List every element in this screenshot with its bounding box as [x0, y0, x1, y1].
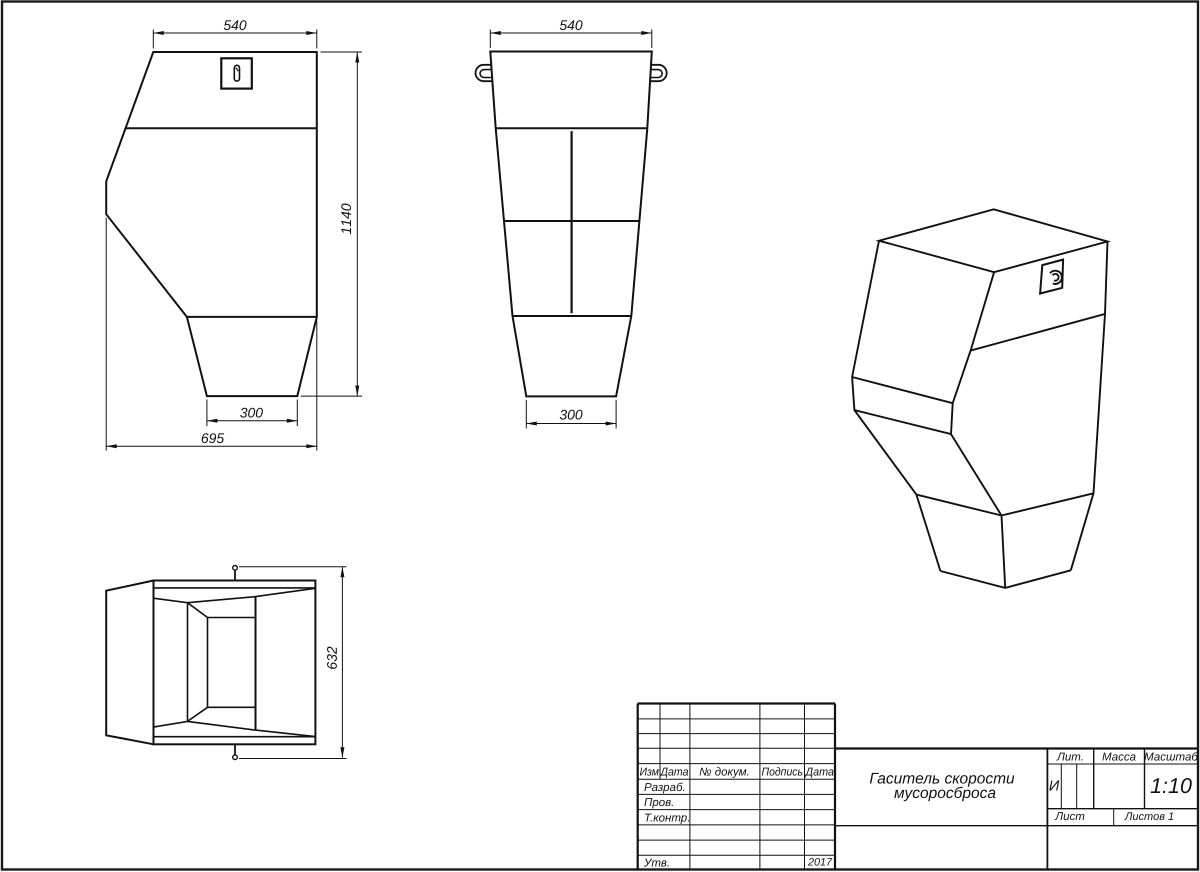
- svg-text:540: 540: [223, 17, 247, 33]
- svg-text:Утв.: Утв.: [643, 858, 670, 870]
- svg-text:Масса: Масса: [1102, 752, 1136, 764]
- svg-text:300: 300: [559, 407, 583, 423]
- svg-text:300: 300: [240, 404, 264, 420]
- svg-text:Дата: Дата: [659, 767, 689, 779]
- svg-text:Подпись: Подпись: [762, 767, 804, 779]
- svg-text:Лит.: Лит.: [1056, 752, 1084, 764]
- svg-text:1:10: 1:10: [1150, 774, 1192, 798]
- svg-text:Изм: Изм: [640, 767, 660, 779]
- svg-text:№ докум.: № докум.: [699, 767, 750, 779]
- svg-text:540: 540: [559, 17, 583, 33]
- svg-text:Масштаб: Масштаб: [1144, 752, 1198, 764]
- svg-text:И: И: [1049, 779, 1060, 795]
- svg-text:мусоросброса: мусоросброса: [894, 785, 996, 802]
- svg-text:Пров.: Пров.: [644, 797, 674, 809]
- svg-text:Лист: Лист: [1054, 811, 1085, 823]
- svg-text:Т.контр.: Т.контр.: [644, 813, 690, 825]
- svg-text:695: 695: [201, 430, 225, 446]
- svg-text:2017: 2017: [807, 857, 833, 869]
- svg-text:Листов 1: Листов 1: [1124, 811, 1174, 823]
- svg-text:Разраб.: Разраб.: [644, 782, 686, 794]
- svg-text:Дата: Дата: [804, 767, 834, 779]
